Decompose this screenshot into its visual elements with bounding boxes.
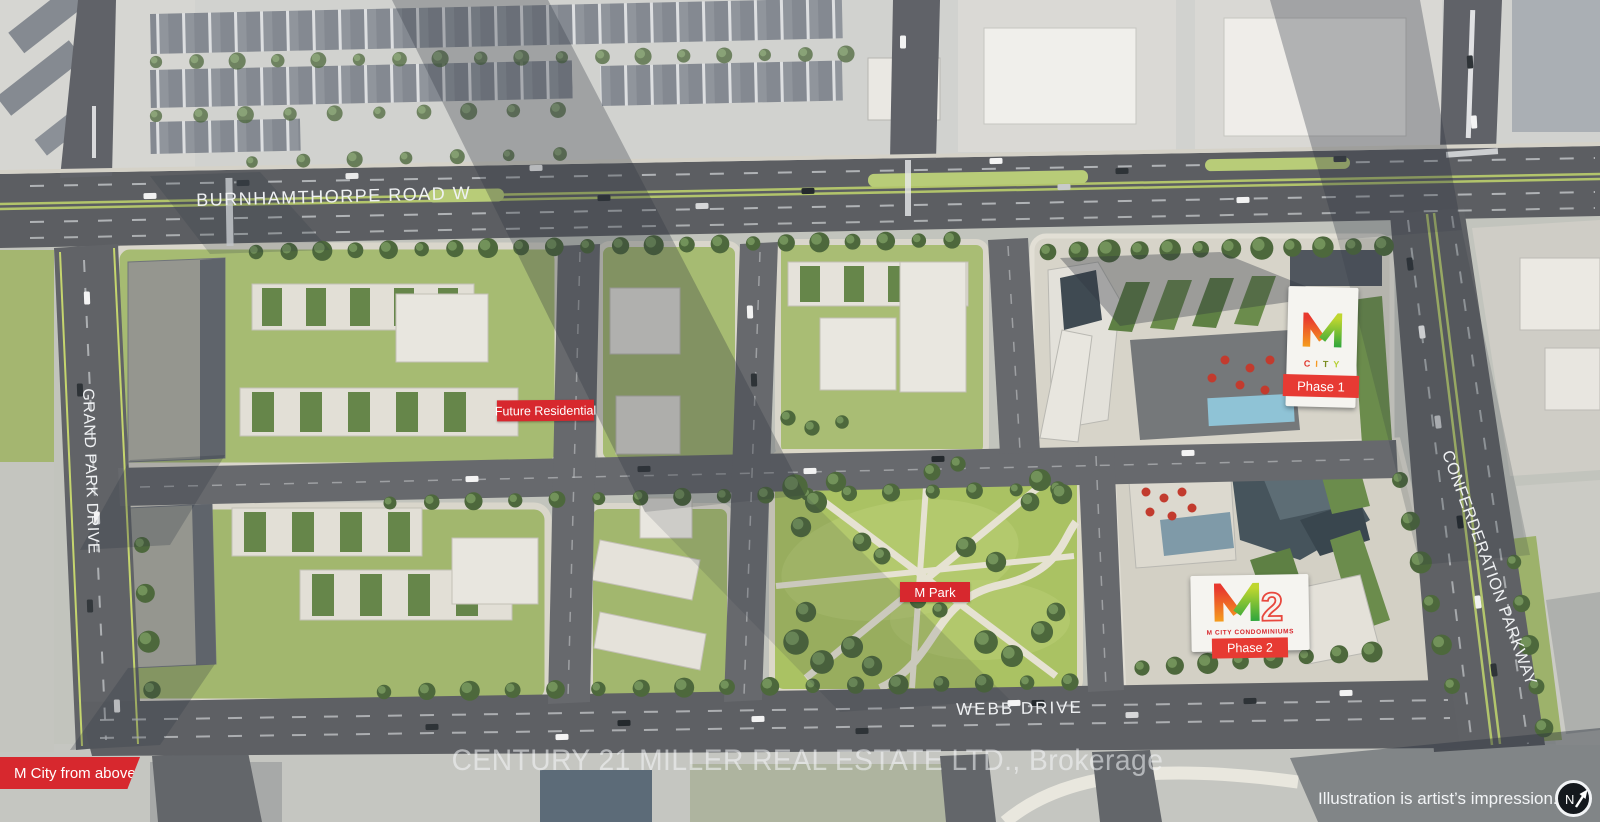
m2-logo-icon: 2 <box>1212 582 1291 625</box>
phase1-banner: Phase 1 <box>1283 374 1360 398</box>
m-city-logo-wordmark: C I T Y <box>1286 358 1356 370</box>
artist-impression-disclaimer: Illustration is artist’s impression. <box>1318 789 1558 809</box>
aerial-site-plan: BURNHAMTHORPE ROAD W GRAND PARK DRIVE CO… <box>0 0 1600 822</box>
compass-icon: N <box>1555 780 1592 817</box>
view-title-tag: M City from above <box>0 757 140 789</box>
m2-subtitle: M CITY CONDOMINIUMS <box>1191 628 1309 637</box>
north-arrow-icon <box>1558 783 1595 820</box>
logo-letter: C <box>1304 359 1311 369</box>
m-park-tag: M Park <box>900 582 970 602</box>
m-city-logo-icon <box>1302 312 1343 351</box>
logo-letter: T <box>1323 359 1329 369</box>
site-plan-illustration <box>0 0 1600 822</box>
phase2-banner: Phase 2 <box>1212 637 1288 658</box>
road-label-webb: WEBB DRIVE <box>956 698 1083 720</box>
phase1-sign: C I T Y Phase 1 <box>1285 286 1358 408</box>
logo-letter: Y <box>1333 359 1339 369</box>
future-residential-tag: Future Residential <box>497 400 594 422</box>
brokerage-watermark: CENTURY 21 MILLER REAL ESTATE LTD., Brok… <box>452 744 1129 778</box>
logo-letter: I <box>1315 359 1318 369</box>
m2-number: 2 <box>1261 585 1284 625</box>
